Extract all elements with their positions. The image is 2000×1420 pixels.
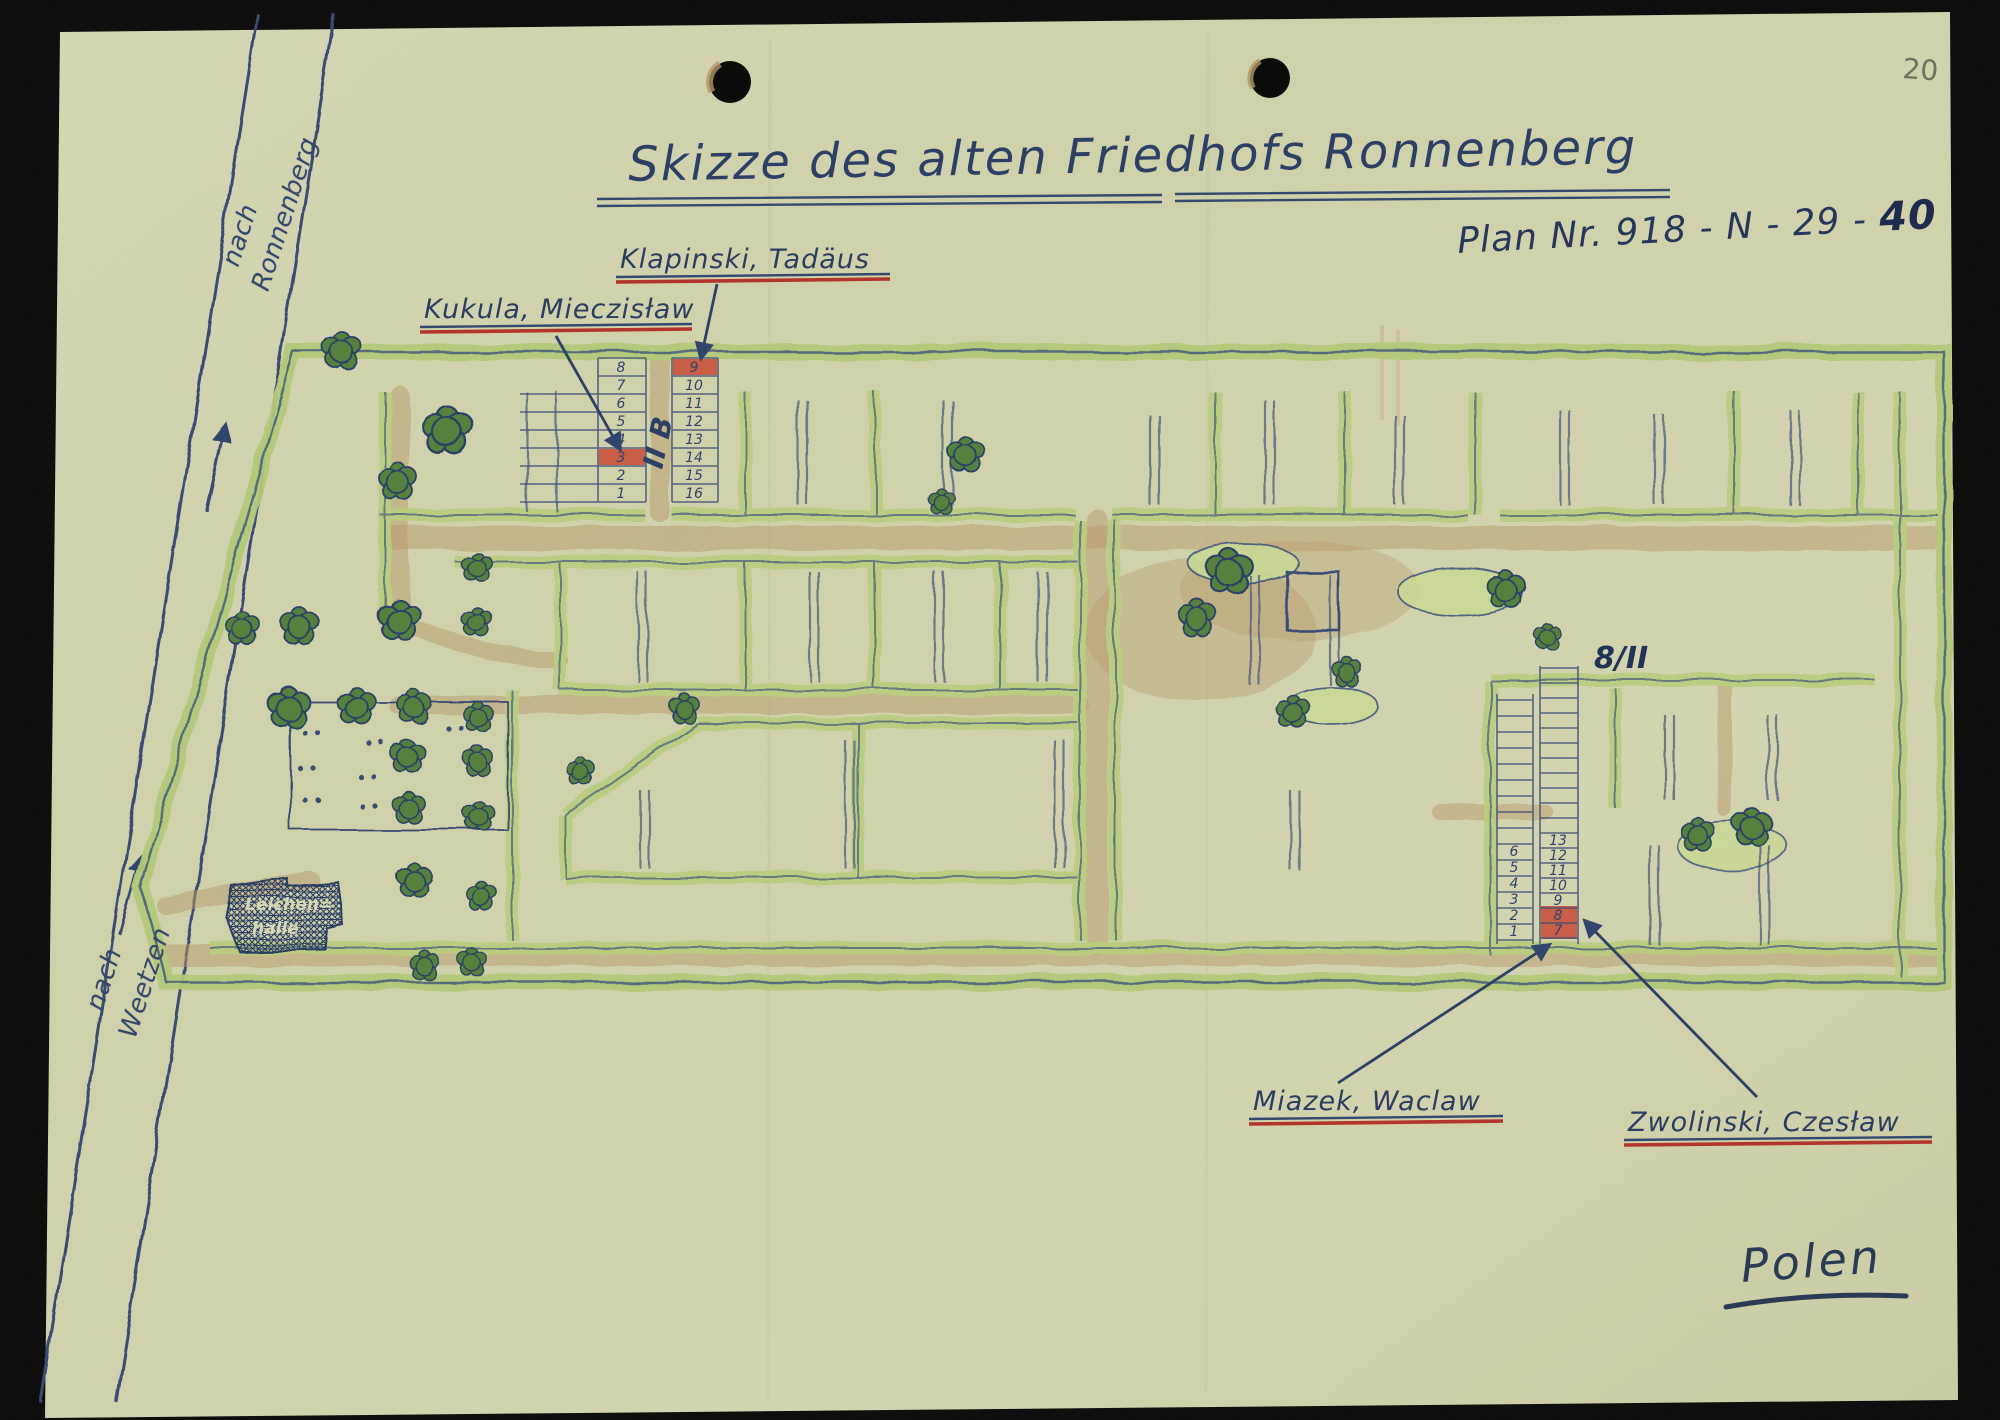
signature-polen: Polen (1739, 1229, 1884, 1293)
grave-number: 15 (685, 468, 703, 484)
page-number: 20 (1902, 52, 1940, 87)
morgue-label-line2: halle (252, 919, 299, 939)
grave-number: 9 (1554, 893, 1563, 909)
plan-number-suffix: 40 (1877, 192, 1938, 241)
cemetery-map-scan: 8 7 6 5 4 3 2 1 9 10 11 12 13 14 15 16 I… (0, 0, 2000, 1420)
grave-number: 3 (1510, 892, 1519, 908)
morgue-label-line1: Leichen= (245, 895, 333, 915)
grave-number-highlighted: 7 (1554, 923, 1563, 939)
grave-number: 10 (685, 378, 703, 394)
grave-number: 10 (1549, 878, 1567, 894)
grave-number: 12 (1549, 848, 1567, 864)
label-klapinski: Klapinski, Tadäus (620, 244, 870, 275)
grave-number-highlighted: 8 (1554, 908, 1563, 924)
grave-number: 6 (617, 396, 626, 412)
scanned-document: 8 7 6 5 4 3 2 1 9 10 11 12 13 14 15 16 I… (0, 0, 2000, 1420)
grave-number: 4 (1510, 876, 1519, 892)
grave-number: 1 (1510, 924, 1519, 940)
grave-number: 13 (1549, 833, 1567, 849)
morgue-building: Leichen= halle (226, 878, 344, 952)
grave-number: 11 (1549, 863, 1567, 879)
grave-number: 1 (617, 486, 626, 502)
grave-number: 13 (685, 432, 703, 448)
grave-number: 6 (1510, 844, 1519, 860)
grave-number: 2 (1510, 908, 1519, 924)
grave-number: 14 (685, 450, 703, 466)
label-kukula: Kukula, Mieczisław (424, 294, 694, 325)
section-label-8-II: 8/II (1594, 641, 1648, 676)
label-zwolinski: Zwolinski, Czesław (1627, 1107, 1900, 1138)
grave-number-highlighted: 9 (690, 360, 699, 376)
label-miazek: Miazek, Waclaw (1253, 1086, 1481, 1117)
grave-number: 2 (617, 468, 626, 484)
grave-number: 11 (685, 396, 703, 412)
grave-number: 12 (685, 414, 703, 430)
grave-number: 8 (617, 360, 626, 376)
grave-number: 5 (617, 414, 626, 430)
grave-number-highlighted: 3 (617, 450, 626, 466)
grave-number: 5 (1510, 860, 1519, 876)
grave-number: 16 (685, 486, 703, 502)
grave-number: 7 (617, 378, 626, 394)
